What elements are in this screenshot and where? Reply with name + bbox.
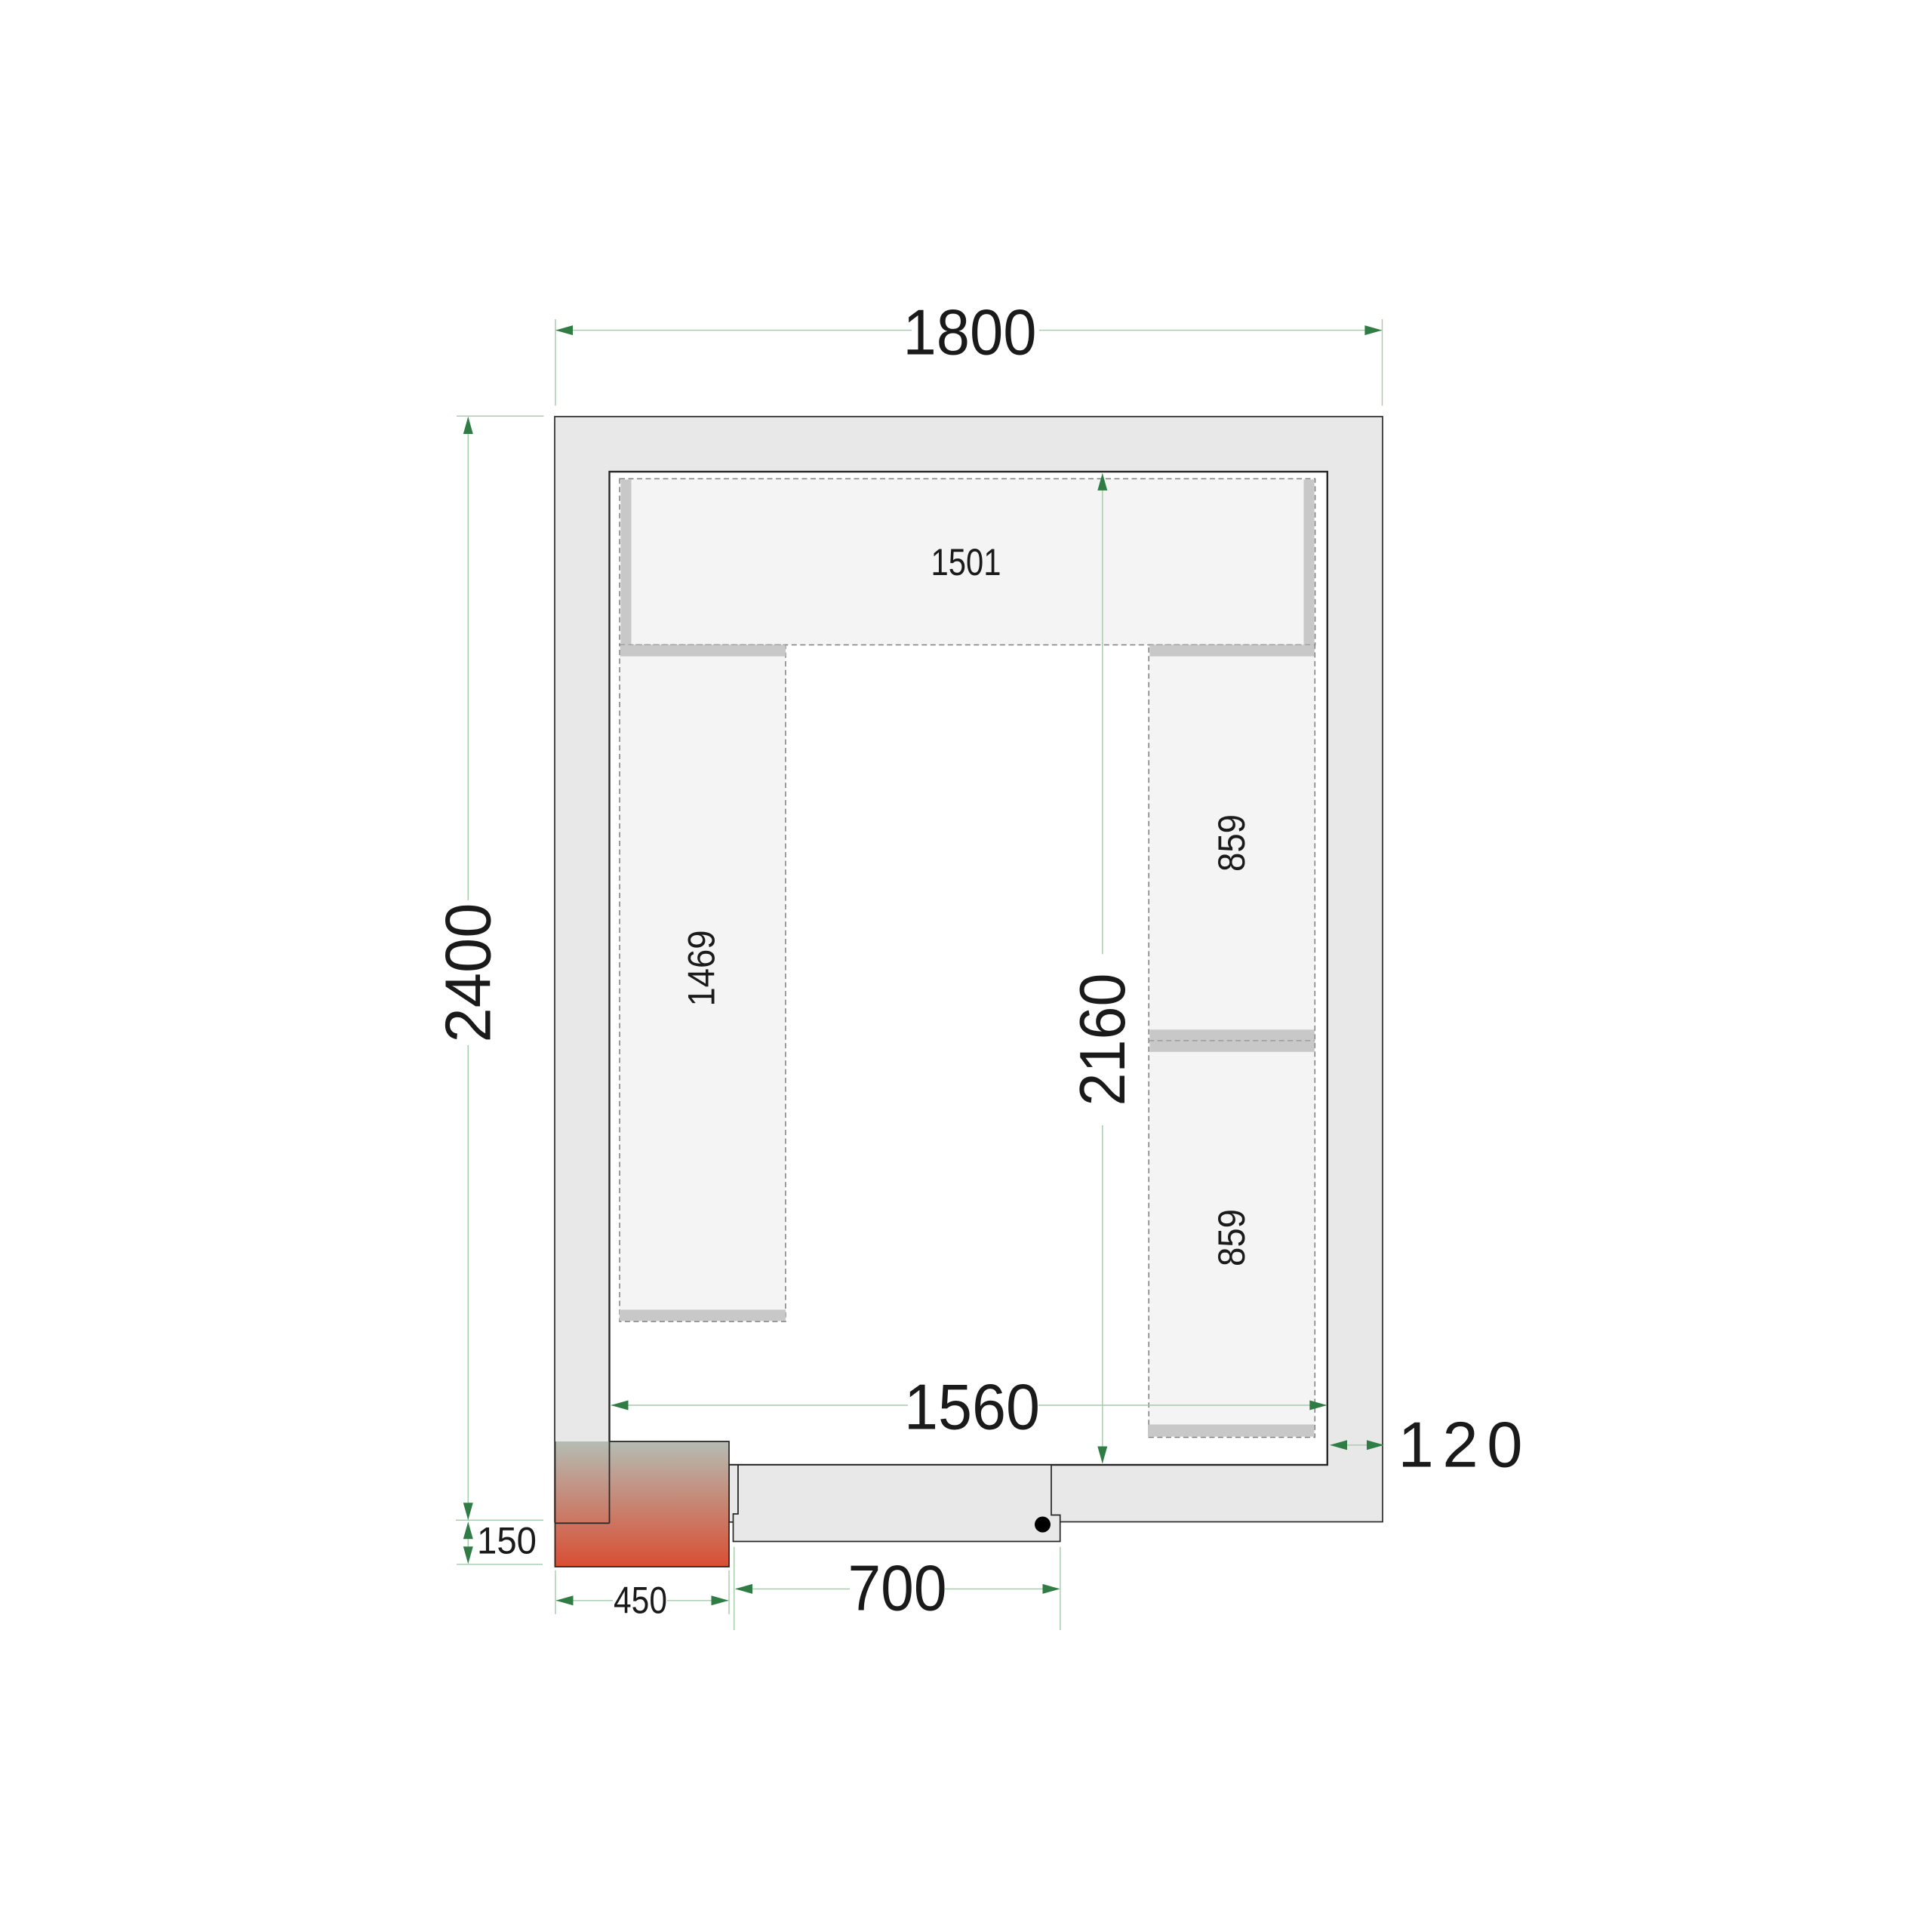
svg-text:1469: 1469 xyxy=(681,931,723,1007)
svg-text:859: 859 xyxy=(1211,814,1253,872)
svg-text:1560: 1560 xyxy=(904,1372,1040,1444)
svg-text:1501: 1501 xyxy=(931,541,1001,583)
svg-text:150: 150 xyxy=(477,1520,537,1562)
svg-text:2160: 2160 xyxy=(1067,974,1139,1106)
svg-text:1800: 1800 xyxy=(903,297,1037,369)
svg-text:700: 700 xyxy=(848,1553,947,1625)
svg-text:2400: 2400 xyxy=(432,903,504,1043)
svg-text:120: 120 xyxy=(1398,1410,1523,1481)
svg-text:450: 450 xyxy=(614,1580,667,1622)
svg-text:859: 859 xyxy=(1211,1209,1253,1266)
